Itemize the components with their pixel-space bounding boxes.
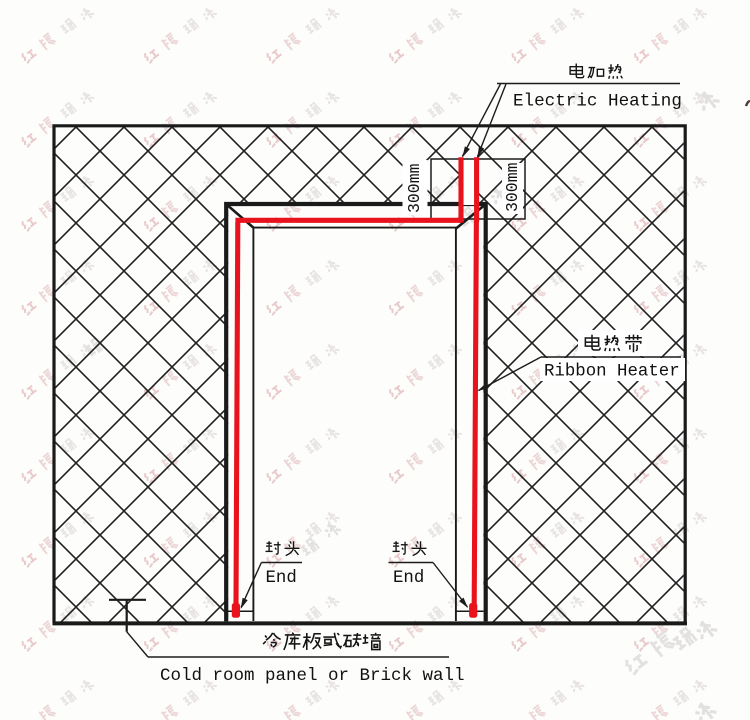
svg-text:Ribbon Heater: Ribbon Heater [544, 363, 680, 382]
svg-text:End: End [266, 569, 297, 588]
svg-text:Cold room panel or Brick wall: Cold room panel or Brick wall [160, 666, 465, 686]
svg-text:300mm: 300mm [405, 163, 424, 213]
svg-text:300mm: 300mm [503, 162, 522, 212]
svg-text:Electric Heating: Electric Heating [513, 92, 682, 112]
svg-text:End: End [393, 569, 424, 588]
